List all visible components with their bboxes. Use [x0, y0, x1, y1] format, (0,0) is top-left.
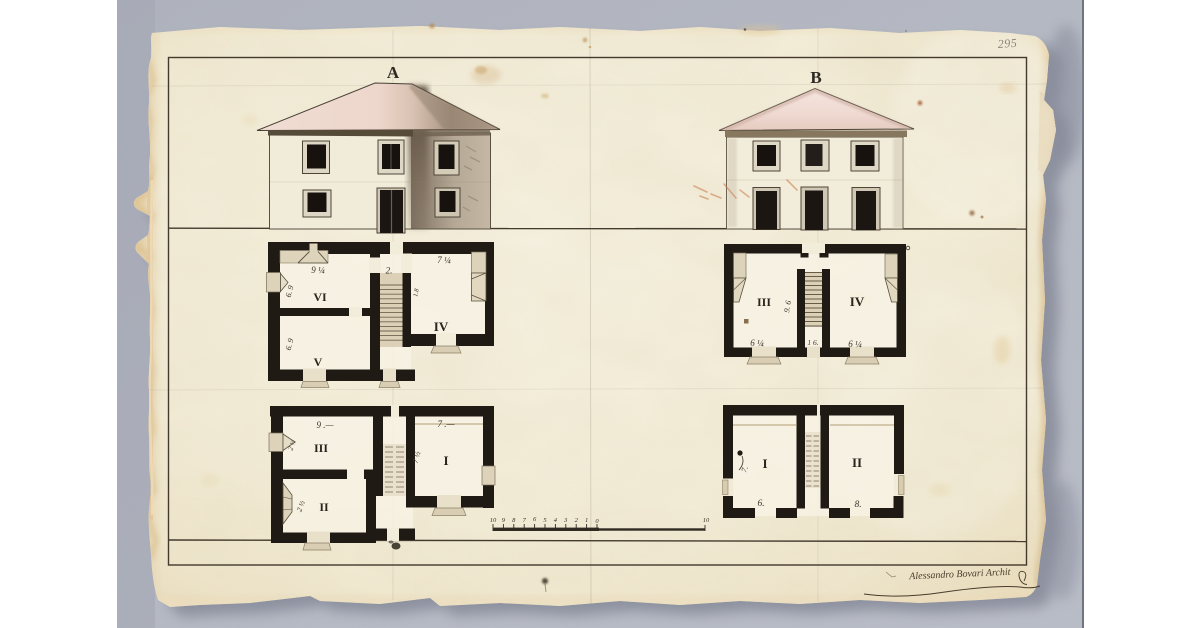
svg-text:III: III — [314, 441, 328, 455]
svg-text:10: 10 — [703, 517, 710, 524]
svg-text:2.: 2. — [386, 266, 393, 276]
svg-text:VI: VI — [313, 290, 327, 304]
svg-text:3: 3 — [563, 517, 568, 524]
svg-text:B: B — [810, 68, 821, 87]
svg-text:6 ¼: 6 ¼ — [848, 339, 862, 349]
svg-text:1 6.: 1 6. — [807, 338, 818, 347]
svg-text:6 ¼: 6 ¼ — [750, 338, 764, 348]
svg-text:III: III — [757, 295, 771, 309]
svg-text:10: 10 — [490, 517, 497, 524]
svg-text:8.: 8. — [854, 500, 861, 510]
svg-text:9 ¼: 9 ¼ — [311, 265, 325, 275]
svg-text:9 .—: 9 .— — [316, 420, 334, 430]
svg-text:A: A — [387, 63, 400, 82]
svg-text:1: 1 — [585, 517, 588, 524]
svg-text:7 .—: 7 .— — [437, 419, 455, 429]
svg-text:V: V — [314, 355, 323, 369]
svg-text:II: II — [319, 500, 329, 514]
svg-text:6.: 6. — [757, 499, 764, 509]
svg-text:7 ¼: 7 ¼ — [437, 255, 451, 265]
svg-text:IV: IV — [434, 319, 449, 334]
svg-text:I: I — [443, 453, 448, 468]
svg-text:II: II — [852, 455, 862, 470]
svg-text:I: I — [762, 456, 767, 471]
svg-text:IV: IV — [850, 294, 865, 309]
svg-text:295: 295 — [997, 36, 1017, 51]
